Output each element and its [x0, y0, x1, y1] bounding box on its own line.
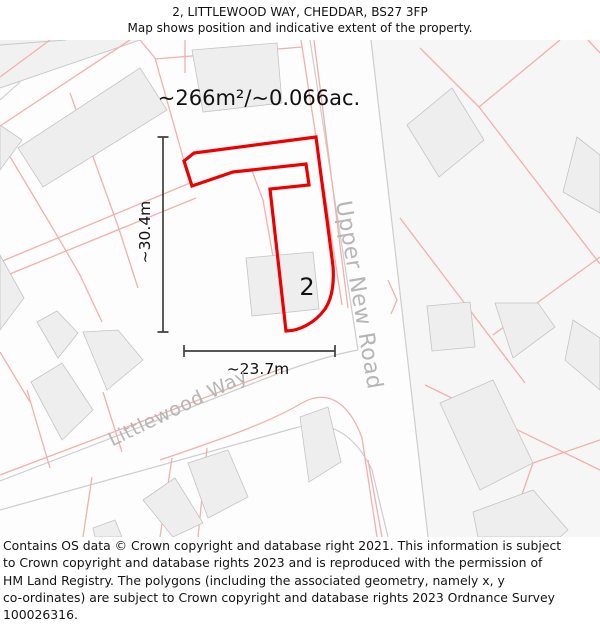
building	[18, 68, 167, 187]
building	[300, 407, 341, 482]
copyright-line: to Crown copyright and database rights 2…	[3, 554, 597, 571]
page-title: 2, LITTLEWOOD WAY, CHEDDAR, BS27 3FP	[0, 0, 600, 20]
building	[31, 363, 93, 440]
building	[0, 255, 24, 330]
property-map-page: { "header": { "title": "2, LITTLEWOOD WA…	[0, 0, 600, 625]
copyright-line: 100026316.	[3, 606, 597, 623]
copyright-line: co-ordinates) are subject to Crown copyr…	[3, 589, 597, 606]
building	[143, 478, 203, 537]
plot-number-label: 2	[299, 273, 314, 301]
map-header: 2, LITTLEWOOD WAY, CHEDDAR, BS27 3FP Map…	[0, 0, 600, 40]
page-subtitle: Map shows position and indicative extent…	[0, 20, 600, 36]
road-label-upper-new-road: Upper New Road	[330, 199, 387, 391]
height-measure-line	[158, 137, 169, 332]
copyright-notice: Contains OS data © Crown copyright and d…	[0, 537, 597, 623]
building	[93, 520, 122, 537]
copyright-line: HM Land Registry. The polygons (includin…	[3, 572, 597, 589]
map-svg: ~266m²/~0.066ac. ~30.4m ~23.7m 2 Upper N…	[0, 40, 600, 537]
map-canvas: ~266m²/~0.066ac. ~30.4m ~23.7m 2 Upper N…	[0, 40, 600, 537]
building	[188, 450, 248, 518]
width-measure-line	[184, 345, 335, 357]
building	[427, 302, 475, 351]
road-label-littlewood-way: Littlewood Way	[105, 365, 251, 451]
height-measure-label: ~30.4m	[136, 201, 154, 264]
building	[37, 311, 78, 358]
copyright-line: Contains OS data © Crown copyright and d…	[3, 537, 597, 554]
building	[83, 330, 143, 390]
area-label: ~266m²/~0.066ac.	[158, 86, 360, 110]
